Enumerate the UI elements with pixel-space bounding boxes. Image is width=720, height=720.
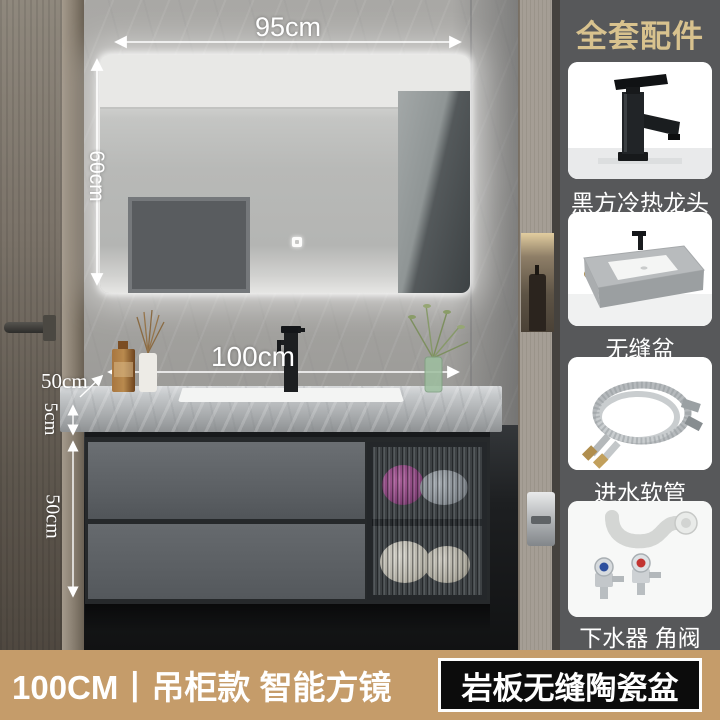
soap-bottle bbox=[529, 274, 546, 331]
mirror-height-label: 60cm bbox=[84, 145, 108, 207]
accessories-sidebar: 全套配件 黑方冷热龙头 bbox=[560, 0, 720, 650]
counter-width-label: 100cm bbox=[206, 341, 300, 373]
fluted-glass-overlay bbox=[372, 447, 482, 595]
cabinet-drawer-bottom bbox=[88, 524, 365, 599]
product-image: 95cm 60cm 100cm 50cm 5cm 50cm 全套配件 黑方冷热龙… bbox=[0, 0, 720, 720]
cabinet-drawer-top bbox=[88, 442, 365, 519]
door-frame bbox=[62, 0, 84, 650]
counter-thickness-label: 5cm bbox=[39, 399, 61, 439]
sidebar-title: 全套配件 bbox=[560, 11, 720, 56]
counter-depth-label: 50cm bbox=[41, 369, 88, 394]
mirror-reflection-door bbox=[128, 197, 250, 293]
bathroom-scene: 95cm 60cm 100cm 50cm 5cm 50cm bbox=[0, 0, 560, 650]
vanity-cabinet bbox=[85, 437, 490, 604]
accessory-card-faucet bbox=[568, 62, 712, 179]
cabinet-height-label: 50cm bbox=[41, 488, 64, 546]
wall-seam bbox=[470, 0, 472, 420]
basin-image-icon bbox=[568, 212, 712, 326]
door-handle-mount bbox=[43, 315, 56, 341]
mirror-touch-button-icon bbox=[292, 237, 302, 247]
integrated-basin bbox=[178, 388, 404, 402]
hose-image-icon bbox=[568, 357, 712, 470]
soap-bottle-pump bbox=[535, 265, 539, 275]
door-handle bbox=[4, 322, 48, 333]
marble-countertop bbox=[60, 386, 502, 432]
fluted-glass-cabinet bbox=[367, 442, 487, 600]
mirror-width-label: 95cm bbox=[238, 12, 338, 43]
faucet-image-icon bbox=[568, 62, 712, 179]
accessory-label-drain: 下水器 角阀 bbox=[560, 619, 720, 653]
cabinet-floor-shadow bbox=[85, 604, 490, 632]
accessory-card-drain bbox=[568, 501, 712, 617]
product-title: 100CM丨吊柜款 智能方镜 bbox=[12, 650, 392, 720]
led-mirror bbox=[100, 55, 470, 293]
footer-bar: 100CM丨吊柜款 智能方镜 岩板无缝陶瓷盆 bbox=[0, 650, 720, 720]
accessory-card-hose bbox=[568, 357, 712, 470]
spec-badge: 岩板无缝陶瓷盆 bbox=[438, 658, 702, 712]
mirror-reflection-shower-glass bbox=[398, 91, 470, 293]
paper-holder-slot bbox=[531, 516, 551, 524]
drain-valve-image-icon bbox=[568, 501, 712, 617]
accessory-card-basin bbox=[568, 212, 712, 326]
